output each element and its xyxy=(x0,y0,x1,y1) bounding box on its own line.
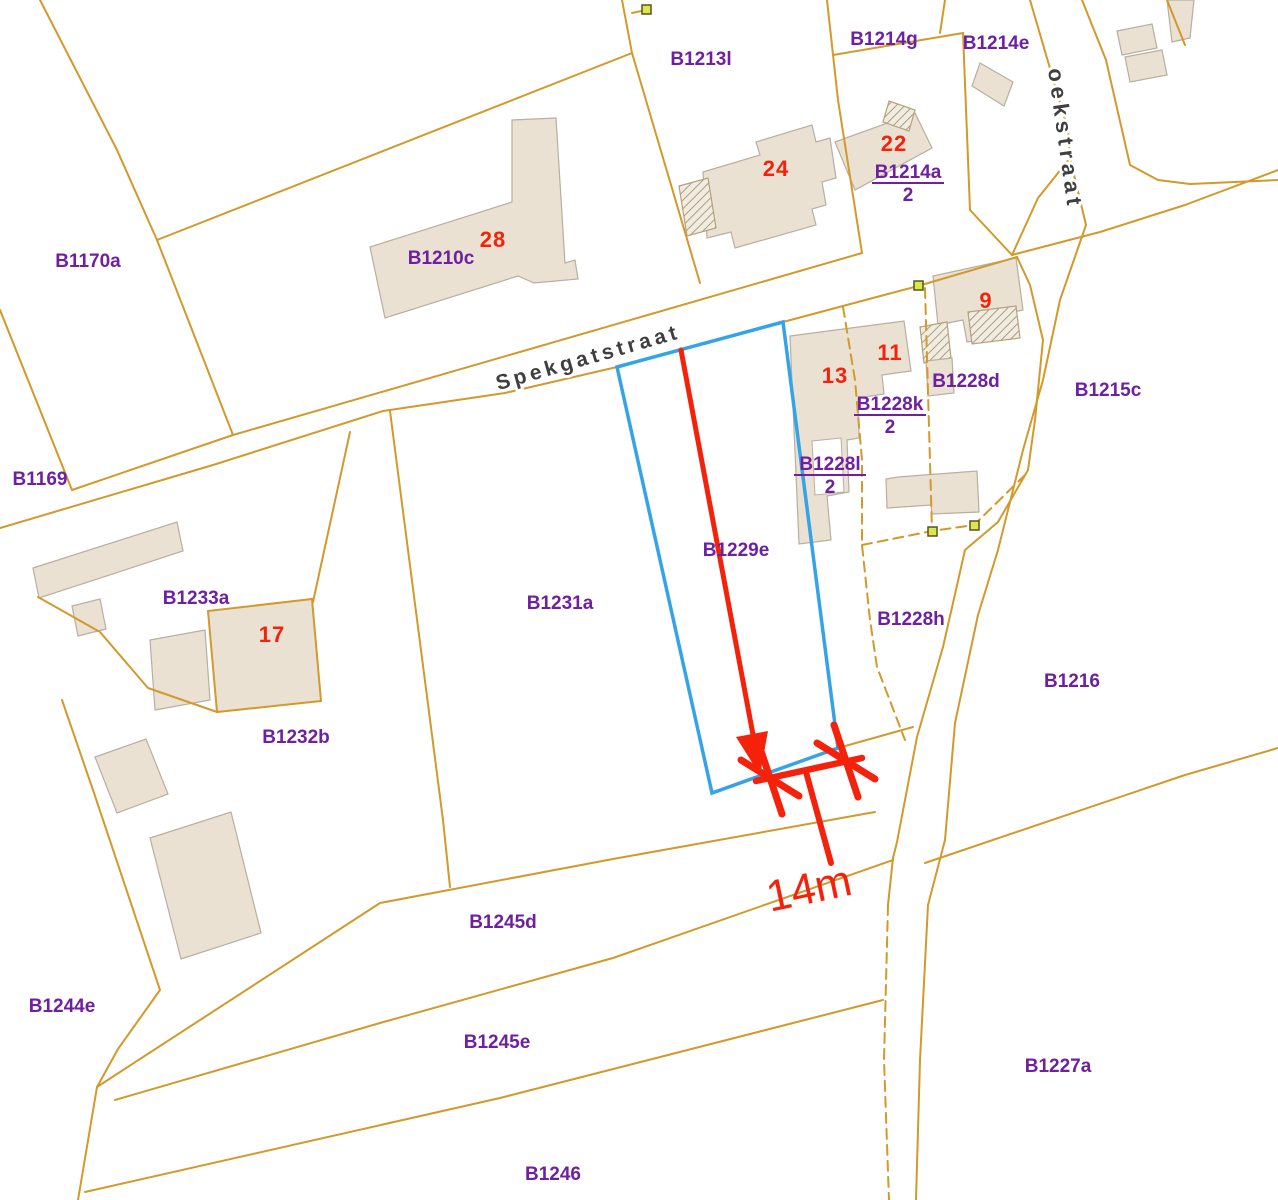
parcel-label-B1246: B1246 xyxy=(525,1164,581,1185)
building xyxy=(95,739,168,813)
parcel-label-B1231a: B1231a xyxy=(527,593,594,614)
parcel-label-B1216: B1216 xyxy=(1044,671,1100,692)
labels-layer: B1170aB1210cB1213lB1214gB1214eB1215cB122… xyxy=(13,29,1142,1185)
parcel-boundary xyxy=(622,0,700,283)
house-number-17: 17 xyxy=(259,622,285,647)
parcel-boundary xyxy=(40,0,233,435)
parcel-label-B1214a: B1214a xyxy=(875,162,942,183)
house-number-22: 22 xyxy=(881,131,907,156)
parcel-label-B1227a: B1227a xyxy=(1025,1056,1092,1077)
house-number-24: 24 xyxy=(763,156,789,181)
building xyxy=(886,471,979,514)
parcel-boundary xyxy=(85,1000,883,1192)
parcel-label-B1213l: B1213l xyxy=(670,49,731,70)
parcel-label-B1245d: B1245d xyxy=(469,912,537,933)
parcel-boundary xyxy=(925,748,1278,863)
parcel-boundary xyxy=(970,210,1012,255)
parcel-label-B1229e: B1229e xyxy=(703,540,770,561)
parcel-label-B1214e: B1214e xyxy=(963,33,1030,54)
parcel-label-B1170a: B1170a xyxy=(55,251,121,272)
road-edge xyxy=(888,257,1043,905)
house-number-11: 11 xyxy=(877,340,902,365)
building-hatched xyxy=(968,306,1020,344)
parcel-boundary xyxy=(313,432,350,602)
parcel-boundary xyxy=(838,727,913,748)
parcel-label-B1210c: B1210c xyxy=(408,248,475,269)
parcel-boundary xyxy=(390,411,450,887)
parcel-label-B1228k: B1228k xyxy=(857,394,924,415)
parcel-label-B1245e: B1245e xyxy=(464,1032,531,1053)
parcel-label-B1232b: B1232b xyxy=(262,727,330,748)
parcel-label-B1228d: B1228d xyxy=(932,371,1000,392)
building xyxy=(972,63,1013,106)
leader-line xyxy=(806,772,831,863)
parcel-label-denominator: 2 xyxy=(903,185,914,206)
parcel-label-denominator: 2 xyxy=(825,477,836,498)
building-hatched xyxy=(920,322,951,363)
parcel-label-B1228h: B1228h xyxy=(877,609,945,630)
road-edge xyxy=(884,905,889,1200)
parcel-label-B1244e: B1244e xyxy=(29,996,96,1017)
boundary-marker xyxy=(970,521,979,530)
building xyxy=(370,118,578,318)
parcel-label-B1233a: B1233a xyxy=(163,588,230,609)
building xyxy=(72,599,106,636)
boundary-marker xyxy=(928,527,937,536)
parcel-boundary xyxy=(963,33,970,210)
parcel-label-denominator: 2 xyxy=(885,417,896,438)
building xyxy=(150,630,210,710)
parcel-label-B1214g: B1214g xyxy=(850,29,918,50)
parcel-label-B1169: B1169 xyxy=(13,469,68,490)
boundary-marker xyxy=(914,281,923,290)
street-name-label: oekstraat xyxy=(1043,66,1088,211)
house-number-13: 13 xyxy=(822,363,848,388)
parcel-boundary xyxy=(940,0,945,33)
building xyxy=(150,812,261,959)
house-number-9: 9 xyxy=(979,288,992,313)
cadastral-map[interactable]: B1170aB1210cB1213lB1214gB1214eB1215cB122… xyxy=(0,0,1278,1200)
measurement-label: 14m xyxy=(762,856,856,922)
boundary-marker xyxy=(642,5,651,14)
house-number-28: 28 xyxy=(480,227,506,252)
building-17-parcel xyxy=(208,599,321,712)
building xyxy=(1125,50,1167,82)
map-canvas[interactable]: B1170aB1210cB1213lB1214gB1214eB1215cB122… xyxy=(0,0,1278,1200)
building xyxy=(703,125,836,248)
building xyxy=(33,522,183,598)
parcel-label-B1215c: B1215c xyxy=(1075,380,1142,401)
parcel-label-B1228l: B1228l xyxy=(799,454,860,475)
building xyxy=(1117,24,1157,55)
parcel-boundary xyxy=(0,310,72,490)
